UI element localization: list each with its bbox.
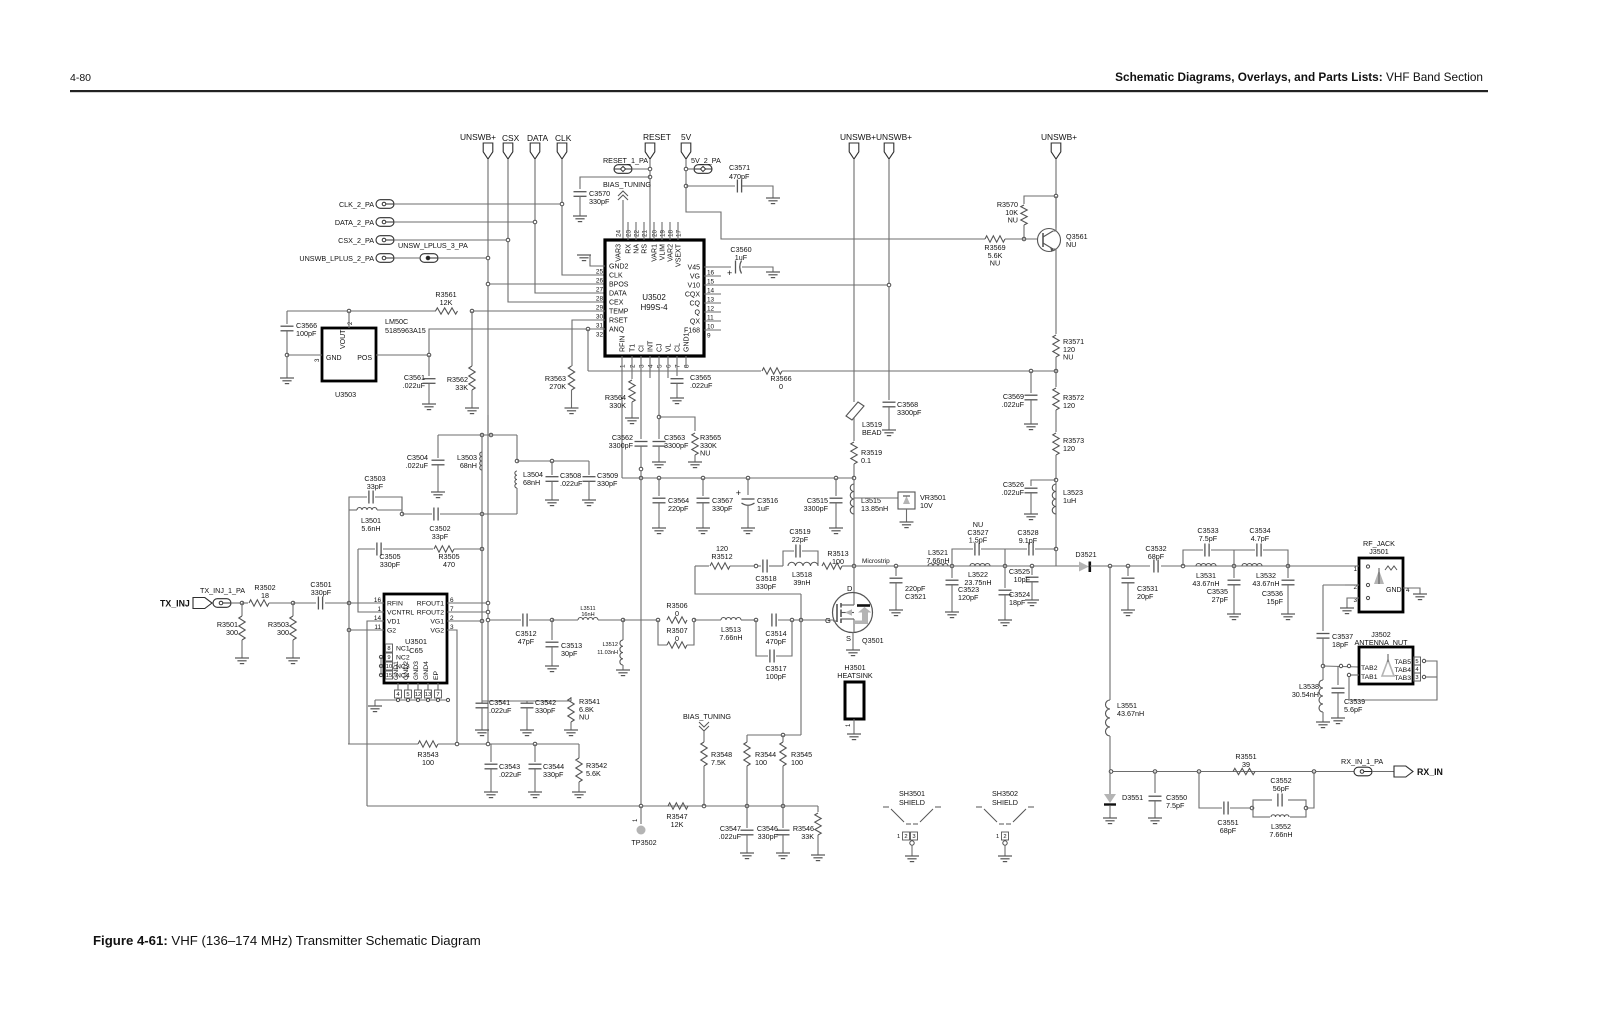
svg-text:330pF: 330pF (311, 588, 332, 597)
svg-text:12K: 12K (440, 298, 453, 307)
svg-text:19: 19 (660, 229, 667, 237)
svg-text:330pF: 330pF (712, 504, 733, 513)
svg-text:7: 7 (436, 692, 439, 698)
svg-text:470pF: 470pF (729, 172, 750, 181)
svg-text:UNSWB+: UNSWB+ (876, 132, 912, 142)
svg-text:26: 26 (596, 278, 604, 285)
svg-text:33pF: 33pF (432, 532, 449, 541)
svg-text:VG2: VG2 (430, 628, 444, 635)
svg-text:5: 5 (1415, 659, 1418, 665)
svg-text:1: 1 (996, 834, 999, 840)
svg-text:RSET: RSET (609, 318, 628, 325)
svg-text:13.85nH: 13.85nH (861, 504, 888, 513)
svg-text:+: + (727, 268, 732, 278)
svg-text:100: 100 (832, 557, 844, 566)
svg-text:RS: RS (642, 244, 649, 254)
svg-text:4-80: 4-80 (70, 72, 91, 84)
svg-text:VSEXT: VSEXT (676, 243, 683, 267)
svg-text:RFOUT2: RFOUT2 (417, 610, 444, 617)
svg-text:CLK_2_PA: CLK_2_PA (339, 200, 374, 209)
svg-text:ANTENNA_NUT: ANTENNA_NUT (1354, 638, 1408, 647)
svg-text:1uF: 1uF (757, 504, 770, 513)
svg-text:TAB1: TAB1 (1361, 674, 1378, 681)
svg-text:UNSWB+: UNSWB+ (1041, 132, 1077, 142)
svg-text:RX_IN_1_PA: RX_IN_1_PA (1341, 757, 1383, 766)
svg-text:TEMP: TEMP (609, 309, 629, 316)
svg-text:30pF: 30pF (561, 649, 578, 658)
svg-text:9: 9 (387, 655, 390, 661)
svg-text:NU: NU (990, 259, 1000, 268)
svg-text:330pF: 330pF (589, 197, 610, 206)
svg-text:5.6nH: 5.6nH (361, 524, 380, 533)
svg-text:68pF: 68pF (1148, 552, 1165, 561)
svg-text:8: 8 (684, 364, 691, 368)
svg-text:RFIN: RFIN (387, 601, 403, 608)
svg-text:CL: CL (675, 343, 682, 352)
svg-text:D: D (847, 584, 853, 593)
svg-text:24: 24 (616, 229, 623, 237)
svg-text:68pF: 68pF (1220, 826, 1237, 835)
svg-text:7: 7 (675, 364, 682, 368)
svg-text:GND4: GND4 (423, 661, 430, 680)
svg-text:18pF: 18pF (1009, 598, 1026, 607)
svg-text:RX_IN: RX_IN (1417, 767, 1443, 777)
svg-text:TX_INJ_1_PA: TX_INJ_1_PA (200, 586, 245, 595)
svg-text:2: 2 (1003, 834, 1006, 840)
svg-text:7.5K: 7.5K (711, 758, 726, 767)
svg-text:30.54nH: 30.54nH (1292, 690, 1319, 699)
svg-text:0: 0 (675, 634, 679, 643)
svg-text:CSX_2_PA: CSX_2_PA (338, 236, 374, 245)
svg-text:VD1: VD1 (387, 619, 400, 626)
svg-text:CLK: CLK (555, 133, 572, 143)
svg-text:18pF: 18pF (1332, 640, 1349, 649)
svg-text:5.6K: 5.6K (586, 769, 601, 778)
svg-text:QX: QX (690, 319, 700, 326)
svg-text:VL: VL (666, 343, 673, 352)
svg-text:CI: CI (639, 345, 646, 352)
svg-text:18: 18 (668, 229, 675, 237)
svg-text:DATA: DATA (527, 133, 549, 143)
svg-text:U3503: U3503 (335, 390, 356, 399)
svg-text:BIAS_TUNING: BIAS_TUNING (603, 180, 651, 189)
svg-text:7.5pF: 7.5pF (1199, 534, 1218, 543)
svg-text:2: 2 (630, 364, 637, 368)
svg-text:TAB3: TAB3 (1395, 675, 1412, 682)
svg-text:VG1: VG1 (430, 619, 444, 626)
svg-text:120: 120 (1063, 401, 1075, 410)
svg-text:UNSWB+: UNSWB+ (460, 132, 496, 142)
svg-text:NC2: NC2 (396, 655, 410, 662)
svg-text:100: 100 (422, 758, 434, 767)
svg-text:5V: 5V (681, 132, 692, 142)
svg-text:1uH: 1uH (1063, 496, 1076, 505)
svg-text:3: 3 (639, 364, 646, 368)
svg-text:RESET: RESET (643, 132, 671, 142)
svg-text:SHIELD: SHIELD (899, 798, 925, 807)
svg-text:U3502: U3502 (642, 293, 666, 302)
svg-text:330pF: 330pF (380, 560, 401, 569)
svg-text:.022uF: .022uF (403, 381, 426, 390)
svg-text:28: 28 (596, 296, 604, 303)
svg-text:22pF: 22pF (792, 535, 809, 544)
svg-text:0: 0 (675, 609, 679, 618)
svg-text:43.67nH: 43.67nH (1252, 579, 1279, 588)
svg-text:330pF: 330pF (756, 582, 777, 591)
svg-text:33pF: 33pF (367, 482, 384, 491)
svg-text:VCNTRL: VCNTRL (387, 610, 414, 617)
svg-text:L3512: L3512 (602, 642, 618, 648)
svg-text:LM50C: LM50C (385, 317, 408, 326)
svg-text:18: 18 (261, 591, 269, 600)
svg-text:RFOUT1: RFOUT1 (417, 601, 444, 608)
svg-text:3300pF: 3300pF (804, 504, 829, 513)
svg-text:330K: 330K (609, 401, 626, 410)
svg-text:39nH: 39nH (793, 578, 810, 587)
svg-text:T1: T1 (630, 344, 637, 352)
svg-text:300: 300 (277, 628, 289, 637)
svg-text:100pF: 100pF (766, 672, 787, 681)
svg-text:CJ: CJ (657, 343, 664, 352)
svg-text:GND3: GND3 (413, 661, 420, 680)
svg-text:Schematic Diagrams, Overlays,: Schematic Diagrams, Overlays, and Parts … (1115, 70, 1483, 84)
svg-text:R3512: R3512 (711, 552, 732, 561)
svg-text:C65: C65 (409, 646, 423, 655)
svg-text:CSX: CSX (502, 133, 520, 143)
svg-text:DATA: DATA (609, 291, 627, 298)
svg-text:5V_2_PA: 5V_2_PA (691, 156, 721, 165)
svg-text:7.66nH: 7.66nH (926, 556, 949, 565)
svg-text:330pF: 330pF (543, 770, 564, 779)
svg-text:20: 20 (652, 229, 659, 237)
svg-text:5: 5 (657, 364, 664, 368)
svg-text:2: 2 (904, 834, 907, 840)
svg-text:330pF: 330pF (758, 832, 779, 841)
svg-text:NU: NU (1066, 240, 1076, 249)
svg-text:470: 470 (443, 560, 455, 569)
svg-text:.022uF: .022uF (1002, 400, 1025, 409)
svg-text:68nH: 68nH (523, 478, 540, 487)
svg-text:100pF: 100pF (296, 329, 317, 338)
svg-text:7.66nH: 7.66nH (1269, 830, 1292, 839)
svg-text:1.5pF: 1.5pF (969, 536, 988, 545)
svg-text:20pF: 20pF (1137, 592, 1154, 601)
svg-text:UNSWB_LPLUS_2_PA: UNSWB_LPLUS_2_PA (299, 254, 374, 263)
svg-text:NU: NU (700, 449, 710, 458)
svg-text:TX_INJ: TX_INJ (160, 599, 190, 609)
svg-text:270K: 270K (549, 382, 566, 391)
svg-text:+: + (736, 488, 741, 498)
svg-text:VAR1: VAR1 (652, 244, 659, 262)
svg-text:SHIELD: SHIELD (992, 798, 1018, 807)
svg-text:V45: V45 (688, 265, 701, 272)
svg-text:.022uF: .022uF (406, 461, 429, 470)
svg-text:3300pF: 3300pF (664, 441, 689, 450)
svg-text:68nH: 68nH (460, 461, 477, 470)
svg-text:120: 120 (1063, 444, 1075, 453)
svg-text:NU: NU (1063, 353, 1073, 362)
svg-text:33K: 33K (801, 832, 814, 841)
svg-text:5.6pF: 5.6pF (1344, 705, 1363, 714)
svg-text:Microstrip: Microstrip (862, 558, 890, 565)
svg-text:CQ: CQ (690, 301, 701, 308)
svg-text:3: 3 (912, 834, 915, 840)
svg-text:.022uF: .022uF (690, 381, 713, 390)
svg-text:.022uF: .022uF (560, 479, 583, 488)
svg-text:5: 5 (406, 692, 409, 698)
svg-text:RFIN: RFIN (620, 336, 627, 352)
svg-text:330pF: 330pF (535, 706, 556, 715)
svg-text:300: 300 (226, 628, 238, 637)
svg-text:27: 27 (596, 287, 604, 294)
svg-text:13: 13 (425, 692, 431, 698)
svg-text:1: 1 (897, 834, 900, 840)
svg-text:15: 15 (386, 673, 392, 679)
svg-text:GND: GND (326, 355, 342, 362)
svg-text:17: 17 (676, 229, 683, 237)
svg-text:VAR2: VAR2 (668, 244, 675, 262)
svg-text:100: 100 (755, 758, 767, 767)
svg-text:RESET_1_PA: RESET_1_PA (603, 156, 648, 165)
svg-text:100: 100 (791, 758, 803, 767)
svg-text:6: 6 (666, 364, 673, 368)
svg-text:UNSW_LPLUS_3_PA: UNSW_LPLUS_3_PA (398, 241, 468, 250)
svg-text:470pF: 470pF (766, 637, 787, 646)
svg-text:SH3502: SH3502 (992, 789, 1018, 798)
svg-text:56pF: 56pF (1273, 784, 1290, 793)
svg-text:Q3501: Q3501 (862, 636, 884, 645)
svg-text:GND1: GND1 (684, 332, 691, 352)
svg-text:4.7pF: 4.7pF (1251, 534, 1270, 543)
svg-text:POS: POS (357, 355, 372, 362)
svg-text:27pF: 27pF (1212, 595, 1229, 604)
svg-text:3: 3 (1415, 675, 1418, 681)
svg-text:GND1: GND1 (393, 661, 400, 680)
svg-text:RX: RX (626, 244, 633, 254)
svg-text:32: 32 (596, 332, 604, 339)
svg-text:1: 1 (1353, 566, 1357, 573)
svg-text:TAB5: TAB5 (1395, 659, 1412, 666)
svg-text:10: 10 (386, 664, 392, 670)
svg-text:H99S-4: H99S-4 (640, 303, 668, 312)
svg-text:HEATSINK: HEATSINK (837, 671, 873, 680)
svg-text:CQX: CQX (685, 292, 701, 299)
svg-text:NU: NU (579, 713, 589, 722)
svg-text:10pF: 10pF (1014, 575, 1031, 584)
svg-text:0.1: 0.1 (861, 456, 871, 465)
svg-text:23.75nH: 23.75nH (964, 578, 991, 587)
svg-text:NC1: NC1 (396, 646, 410, 653)
svg-text:23: 23 (626, 229, 633, 237)
svg-text:CEX: CEX (609, 300, 624, 307)
svg-text:33K: 33K (455, 383, 468, 392)
svg-text:220pF: 220pF (668, 504, 689, 513)
svg-text:8: 8 (387, 646, 390, 652)
svg-text:VOUT: VOUT (340, 329, 347, 349)
svg-text:BIAS_TUNING: BIAS_TUNING (683, 712, 731, 721)
svg-text:SH3501: SH3501 (899, 789, 925, 798)
svg-text:0: 0 (779, 382, 783, 391)
svg-text:47pF: 47pF (518, 637, 535, 646)
svg-text:VG: VG (690, 274, 700, 281)
svg-text:330pF: 330pF (597, 479, 618, 488)
svg-text:D3551: D3551 (1122, 793, 1143, 802)
svg-text:ANQ: ANQ (609, 327, 625, 334)
svg-text:43.67nH: 43.67nH (1117, 709, 1144, 718)
svg-text:9.1pF: 9.1pF (1019, 536, 1038, 545)
svg-text:5185963A15: 5185963A15 (385, 326, 426, 335)
svg-text:11.03nH: 11.03nH (597, 650, 618, 656)
svg-text:10V: 10V (920, 501, 933, 510)
svg-text:7.5pF: 7.5pF (1166, 801, 1185, 810)
svg-text:NA: NA (634, 244, 641, 254)
svg-text:.022uF: .022uF (1002, 488, 1025, 497)
svg-text:12: 12 (415, 692, 421, 698)
svg-text:3300pF: 3300pF (609, 441, 634, 450)
svg-text:UNSWB+: UNSWB+ (840, 132, 876, 142)
svg-text:12K: 12K (671, 820, 684, 829)
svg-text:.022uF: .022uF (719, 832, 742, 841)
svg-text:.022uF: .022uF (489, 706, 512, 715)
svg-text:GND2: GND2 (609, 264, 629, 271)
svg-text:GND2: GND2 (403, 661, 410, 680)
svg-text:4: 4 (648, 364, 655, 368)
svg-text:VAR3: VAR3 (616, 244, 623, 262)
svg-text:BPOS: BPOS (609, 282, 629, 289)
svg-text:EP: EP (433, 670, 440, 680)
svg-text:BEAD: BEAD (862, 428, 882, 437)
svg-text:Q: Q (695, 310, 701, 317)
svg-text:G2: G2 (387, 628, 396, 635)
svg-text:7.66nH: 7.66nH (719, 633, 742, 642)
svg-text:C3571: C3571 (729, 163, 750, 172)
svg-text:9: 9 (707, 333, 711, 340)
svg-text:21: 21 (642, 229, 649, 237)
svg-text:15pF: 15pF (1267, 597, 1284, 606)
svg-text:TAB4: TAB4 (1395, 667, 1412, 674)
svg-text:120pF: 120pF (958, 593, 979, 602)
svg-text:NU: NU (1008, 216, 1018, 225)
svg-text:D3521: D3521 (1075, 550, 1096, 559)
svg-text:.022uF: .022uF (499, 770, 522, 779)
svg-text:GND: GND (1386, 587, 1402, 594)
svg-text:25: 25 (596, 269, 604, 276)
svg-text:V10: V10 (688, 283, 701, 290)
svg-text:DATA_2_PA: DATA_2_PA (335, 218, 374, 227)
svg-text:S: S (846, 634, 851, 643)
svg-text:39: 39 (1242, 760, 1250, 769)
svg-text:TP3502: TP3502 (631, 838, 656, 847)
svg-text:J3501: J3501 (1369, 547, 1389, 556)
svg-text:22: 22 (634, 229, 641, 237)
svg-text:TAB2: TAB2 (1361, 665, 1378, 672)
svg-text:1: 1 (620, 364, 627, 368)
svg-text:C3521: C3521 (905, 592, 926, 601)
svg-text:Figure 4-61: VHF (136–174 MHz): Figure 4-61: VHF (136–174 MHz) Transmitt… (93, 933, 481, 948)
svg-text:16nH: 16nH (581, 612, 594, 618)
svg-text:CLK: CLK (609, 273, 623, 280)
svg-text:3300pF: 3300pF (897, 408, 922, 417)
svg-text:VLIM: VLIM (660, 244, 667, 261)
svg-text:INT: INT (648, 340, 655, 352)
